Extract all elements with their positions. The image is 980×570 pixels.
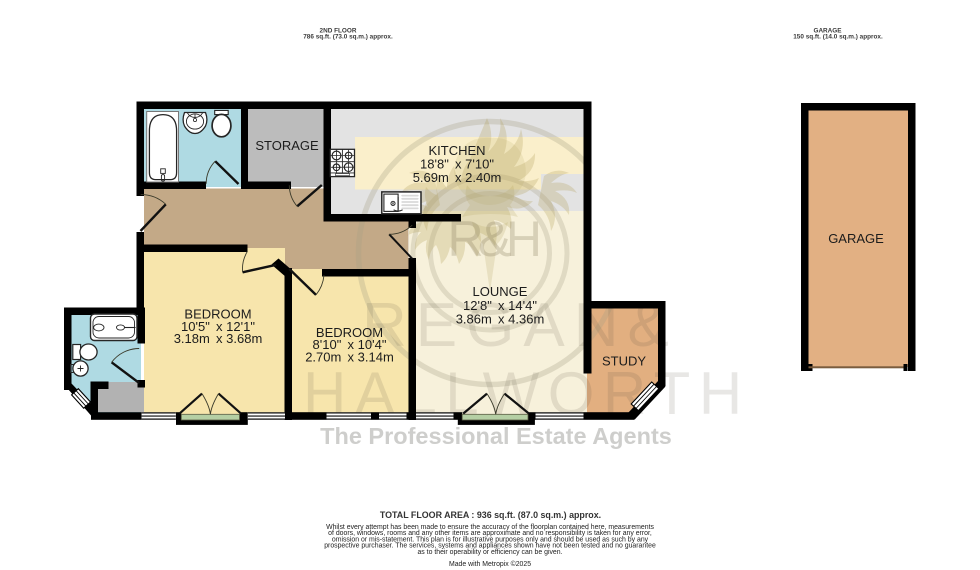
svg-text:The Professional Estate Agents: The Professional Estate Agents [320,423,672,449]
svg-text:as to their operability or eff: as to their operability or efficiency ca… [417,549,562,556]
svg-text:STUDY: STUDY [602,353,646,368]
svg-text:STORAGE: STORAGE [255,138,319,153]
svg-text:2.70m x 3.14m: 2.70m x 3.14m [305,350,394,365]
svg-text:R&H: R&H [447,211,538,267]
svg-text:5.69m x 2.40m: 5.69m x 2.40m [413,170,502,185]
svg-text:GARAGE: GARAGE [828,231,884,246]
svg-text:3.18m x 3.68m: 3.18m x 3.68m [174,331,263,346]
svg-text:LOUNGE: LOUNGE [473,284,528,299]
svg-text:786 sq.ft. (73.0 sq.m.) approx: 786 sq.ft. (73.0 sq.m.) approx. [303,34,393,41]
svg-text:150 sq.ft. (14.0 sq.m.) approx: 150 sq.ft. (14.0 sq.m.) approx. [793,34,883,41]
svg-text:3.86m x 4.36m: 3.86m x 4.36m [456,312,545,327]
svg-text:TOTAL FLOOR AREA : 936 sq.ft.: TOTAL FLOOR AREA : 936 sq.ft. (87.0 sq.m… [380,510,601,520]
svg-text:Made with Metropix ©2025: Made with Metropix ©2025 [449,560,531,568]
